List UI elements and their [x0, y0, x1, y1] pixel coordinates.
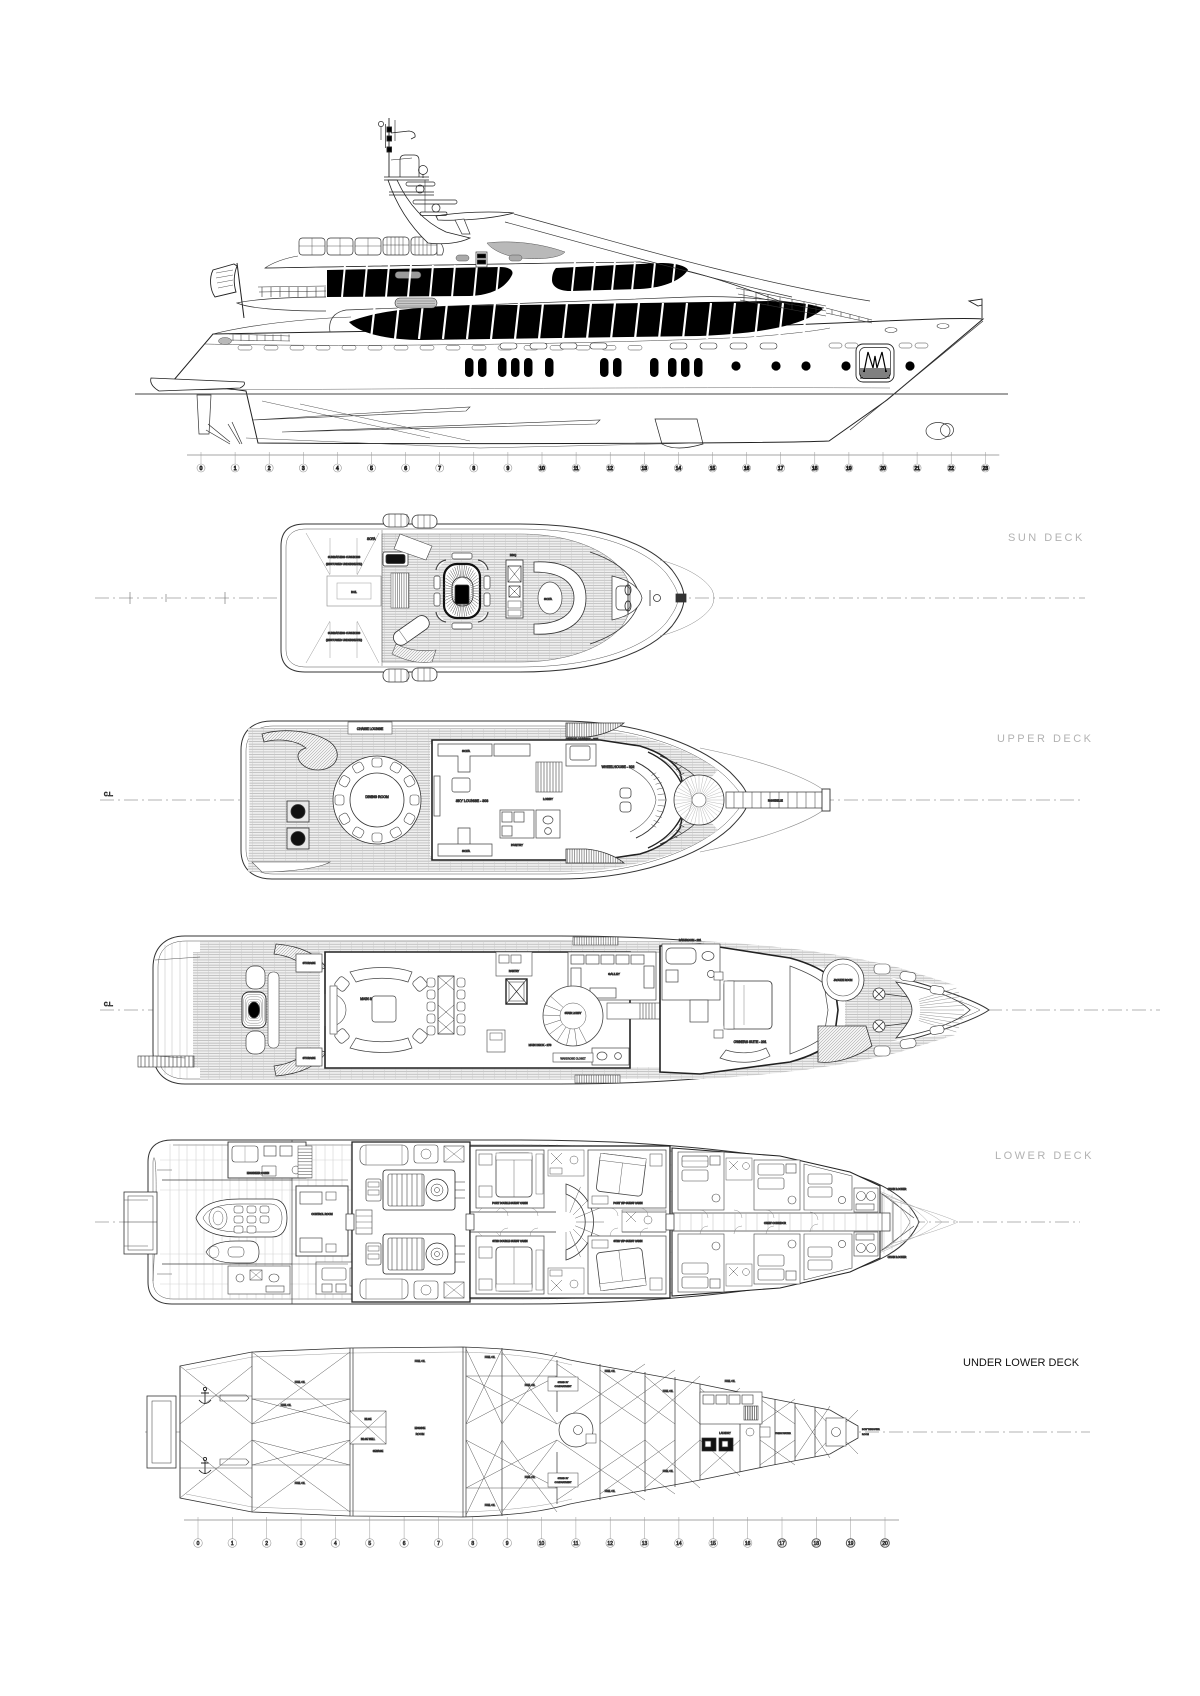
svg-text:C.L.: C.L. — [104, 792, 113, 798]
svg-text:PASSERELLE: PASSERELLE — [768, 800, 783, 803]
svg-text:LOBBY: LOBBY — [543, 797, 553, 801]
svg-text:19: 19 — [846, 466, 852, 472]
svg-text:1: 1 — [234, 466, 237, 472]
svg-text:FRESH WATER: FRESH WATER — [775, 1432, 791, 1435]
svg-text:17: 17 — [778, 466, 784, 472]
svg-text:20: 20 — [880, 466, 886, 472]
svg-text:ENGINEER CABIN: ENGINEER CABIN — [247, 1171, 269, 1175]
svg-text:BOW THRUSTER: BOW THRUSTER — [862, 1429, 880, 1431]
svg-text:CHAIN LOCKER: CHAIN LOCKER — [888, 1256, 907, 1259]
svg-text:STBD DOUBLE GUEST CABIN: STBD DOUBLE GUEST CABIN — [492, 1240, 527, 1243]
svg-text:CHAIN LOCKER: CHAIN LOCKER — [888, 1188, 907, 1191]
svg-text:UNDER LOWER DECK: UNDER LOWER DECK — [963, 1357, 1080, 1369]
svg-text:0: 0 — [200, 466, 203, 472]
svg-text:MAIN DECK - 276: MAIN DECK - 276 — [529, 1043, 552, 1047]
svg-text:FUEL OIL: FUEL OIL — [725, 1380, 736, 1383]
svg-text:STORAGE: STORAGE — [303, 961, 316, 965]
svg-text:FUEL OIL: FUEL OIL — [485, 1504, 496, 1507]
svg-text:COMPARTMENT: COMPARTMENT — [555, 1385, 573, 1388]
svg-text:C.L.: C.L. — [104, 1002, 113, 1008]
svg-text:ROOM: ROOM — [862, 1434, 869, 1436]
svg-text:SOFA: SOFA — [462, 849, 470, 853]
svg-text:6: 6 — [404, 466, 407, 472]
svg-text:OWNERS SUITE - 201: OWNERS SUITE - 201 — [734, 1040, 767, 1044]
svg-text:4: 4 — [334, 1541, 337, 1547]
svg-text:15: 15 — [710, 466, 716, 472]
svg-text:8: 8 — [471, 1541, 474, 1547]
svg-text:PANTRY: PANTRY — [511, 843, 523, 847]
svg-text:SKY LOUNGE - 303: SKY LOUNGE - 303 — [456, 799, 489, 803]
svg-text:BILGE: BILGE — [364, 1418, 371, 1421]
svg-text:(W/STOWED UNDERNEATH): (W/STOWED UNDERNEATH) — [326, 562, 362, 566]
svg-text:5: 5 — [368, 1541, 371, 1547]
svg-text:RAIL: RAIL — [351, 590, 357, 594]
svg-text:STAND BY: STAND BY — [558, 1381, 569, 1384]
svg-text:JACUZZI ROOM: JACUZZI ROOM — [834, 979, 853, 982]
svg-text:FUEL OIL: FUEL OIL — [525, 1476, 536, 1479]
svg-text:STBD VIP GUEST CABIN: STBD VIP GUEST CABIN — [614, 1240, 643, 1243]
svg-text:10: 10 — [539, 466, 545, 472]
svg-text:0: 0 — [197, 1541, 200, 1547]
svg-text:SOFA: SOFA — [367, 537, 376, 541]
svg-text:20: 20 — [882, 1541, 888, 1547]
svg-text:8: 8 — [472, 466, 475, 472]
svg-text:FUEL OIL: FUEL OIL — [525, 1384, 536, 1387]
svg-text:PANTRY: PANTRY — [509, 969, 520, 973]
svg-text:PORT VIP GUEST CABIN: PORT VIP GUEST CABIN — [613, 1202, 642, 1205]
svg-text:LOWER DECK: LOWER DECK — [995, 1150, 1094, 1162]
svg-text:SEWAGE: SEWAGE — [373, 1450, 384, 1453]
svg-text:13: 13 — [642, 1541, 648, 1547]
svg-text:6: 6 — [403, 1541, 406, 1547]
svg-text:FUEL OIL: FUEL OIL — [295, 1381, 306, 1384]
svg-text:9: 9 — [507, 466, 510, 472]
svg-text:9: 9 — [506, 1541, 509, 1547]
svg-text:OFFICE CABINET - 305: OFFICE CABINET - 305 — [566, 737, 599, 741]
svg-text:3: 3 — [300, 1541, 303, 1547]
svg-text:FUEL OIL: FUEL OIL — [295, 1482, 306, 1485]
svg-text:GALLEY: GALLEY — [608, 972, 620, 976]
svg-text:WHEELHOUSE - 302: WHEELHOUSE - 302 — [602, 765, 635, 769]
svg-text:STAND BY: STAND BY — [558, 1477, 569, 1480]
svg-text:11: 11 — [573, 466, 578, 472]
svg-text:13: 13 — [642, 466, 648, 472]
svg-text:2: 2 — [268, 466, 271, 472]
svg-text:5: 5 — [370, 466, 373, 472]
svg-text:CREW CORRIDOR: CREW CORRIDOR — [764, 1222, 786, 1225]
svg-text:1: 1 — [231, 1541, 234, 1547]
svg-text:17: 17 — [779, 1541, 785, 1547]
svg-text:14: 14 — [676, 1541, 682, 1547]
svg-text:21: 21 — [914, 466, 920, 472]
svg-text:STAIR LOBBY: STAIR LOBBY — [565, 1011, 582, 1015]
svg-text:LAUNDRY: LAUNDRY — [719, 1432, 731, 1435]
svg-text:ENGINE: ENGINE — [415, 1426, 426, 1430]
svg-text:(W/STOWED UNDERNEATH): (W/STOWED UNDERNEATH) — [326, 638, 362, 642]
svg-text:12: 12 — [607, 1541, 613, 1547]
svg-text:ROOM: ROOM — [416, 1432, 425, 1436]
svg-text:22: 22 — [948, 466, 954, 472]
svg-text:FUEL OIL: FUEL OIL — [605, 1490, 616, 1493]
svg-text:3: 3 — [302, 466, 305, 472]
svg-text:2: 2 — [265, 1541, 268, 1547]
svg-text:BBQ: BBQ — [510, 553, 517, 557]
svg-text:SOFA: SOFA — [544, 597, 552, 601]
svg-text:14: 14 — [676, 466, 682, 472]
svg-text:SUNBATHING CUSHIONS: SUNBATHING CUSHIONS — [328, 555, 361, 559]
svg-text:19: 19 — [848, 1541, 854, 1547]
svg-text:SOFA: SOFA — [462, 749, 470, 753]
svg-text:18: 18 — [812, 466, 818, 472]
svg-text:DINING ROOM: DINING ROOM — [365, 795, 389, 799]
svg-text:WARDROBE CLOSET: WARDROBE CLOSET — [560, 1058, 586, 1061]
svg-text:16: 16 — [745, 1541, 751, 1547]
svg-text:COMPARTMENT: COMPARTMENT — [555, 1481, 573, 1484]
svg-text:FUEL OIL: FUEL OIL — [281, 1404, 292, 1407]
svg-text:SUN DECK: SUN DECK — [1008, 532, 1085, 544]
svg-text:18: 18 — [814, 1541, 820, 1547]
svg-text:12: 12 — [607, 466, 613, 472]
svg-text:11: 11 — [573, 1541, 578, 1547]
svg-text:FUEL OIL: FUEL OIL — [605, 1370, 616, 1373]
svg-text:23: 23 — [983, 466, 989, 472]
svg-text:FUEL OIL: FUEL OIL — [663, 1470, 674, 1473]
svg-text:FUEL OIL: FUEL OIL — [663, 1390, 674, 1393]
svg-text:STORAGE: STORAGE — [303, 1056, 316, 1060]
svg-text:CHAISE LOUNGE: CHAISE LOUNGE — [357, 727, 383, 731]
svg-text:15: 15 — [710, 1541, 716, 1547]
svg-text:7: 7 — [437, 1541, 440, 1547]
svg-text:FUEL OIL: FUEL OIL — [485, 1356, 496, 1359]
svg-text:CONTROL ROOM: CONTROL ROOM — [311, 1212, 332, 1216]
svg-text:BATHROOM - 201: BATHROOM - 201 — [679, 938, 702, 942]
svg-text:4: 4 — [336, 466, 339, 472]
svg-text:UPPER DECK: UPPER DECK — [997, 733, 1094, 745]
svg-text:PORT DOUBLE GUEST CABIN: PORT DOUBLE GUEST CABIN — [492, 1202, 528, 1205]
svg-text:10: 10 — [539, 1541, 545, 1547]
svg-text:BILGE WELL: BILGE WELL — [361, 1438, 376, 1441]
svg-text:7: 7 — [438, 466, 441, 472]
svg-text:SUNBATHING CUSHIONS: SUNBATHING CUSHIONS — [328, 631, 361, 635]
svg-text:16: 16 — [744, 466, 750, 472]
svg-text:FUEL OIL: FUEL OIL — [415, 1360, 426, 1363]
